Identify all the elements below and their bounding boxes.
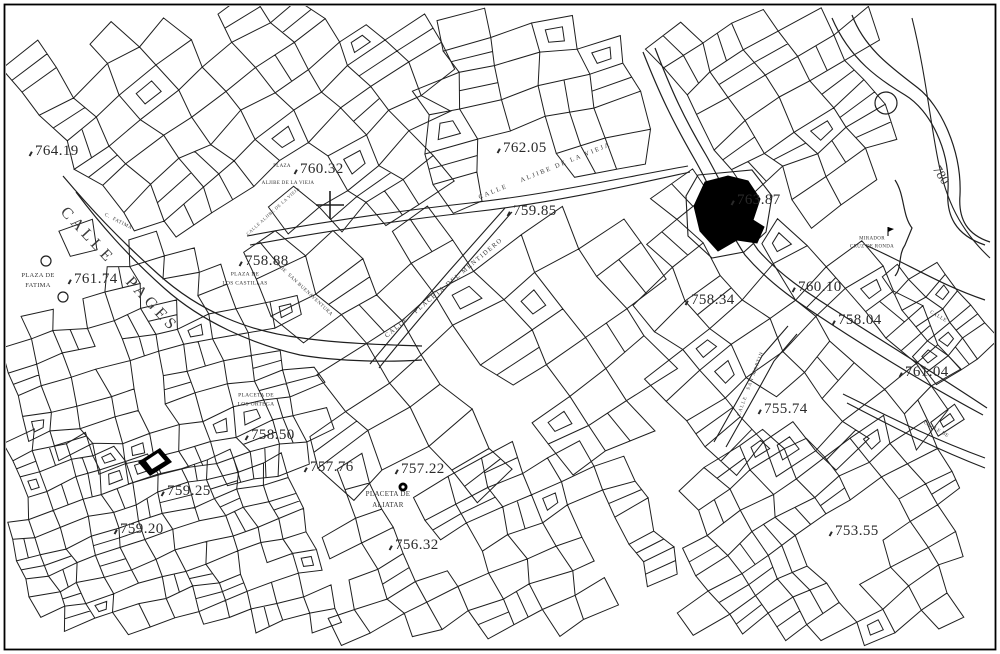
elevation-tick-icon: [389, 545, 393, 550]
elevation-value: 756.32: [395, 537, 439, 553]
elevation-label: 758.50: [244, 427, 295, 444]
place-name-label: PLAZA DELOS CASTILLAS: [222, 270, 267, 287]
street-name-label: CALLE: [929, 310, 948, 324]
elevation-tick-icon: [114, 529, 118, 534]
map-labels-layer: 764.19760.32762.05759.85763.87758.88761.…: [0, 0, 1000, 654]
elevation-tick-icon: [29, 151, 33, 156]
elevation-tick-icon: [304, 467, 308, 472]
elevation-value: 758.04: [838, 312, 882, 328]
elevation-label: 756.32: [388, 537, 439, 554]
place-name-line: ALJIBE DE LA VIEJA: [262, 180, 315, 188]
elevation-value: 759.25: [167, 483, 211, 499]
place-name-label: MIRADORCRUZ DE RONDA: [850, 235, 894, 251]
elevation-label: 759.20: [113, 521, 164, 538]
elevation-label: 753.55: [828, 523, 879, 540]
elevation-label: 758.34: [684, 292, 735, 309]
elevation-tick-icon: [395, 469, 399, 474]
elevation-label: 764.19: [28, 143, 79, 160]
elevation-value: 758.50: [251, 427, 295, 443]
elevation-tick-icon: [68, 279, 72, 284]
elevation-tick-icon: [507, 211, 511, 216]
elevation-tick-icon: [832, 320, 836, 325]
elevation-value: 758.34: [691, 292, 735, 308]
place-name-line: CRUZ DE RONDA: [850, 243, 894, 251]
place-name-label: PLACETA DELOS ORTEGA: [238, 391, 275, 408]
street-name-label: CALLE PLACETA DEL MENTIDERO: [384, 237, 505, 340]
elevation-tick-icon: [899, 372, 903, 377]
elevation-value: 760.10: [798, 279, 842, 295]
place-name-line: PLAZA DE: [222, 270, 267, 279]
place-name-label: PLAZA: [273, 163, 291, 171]
place-name-line: LOS CASTILLAS: [222, 279, 267, 288]
elevation-value: 757.76: [310, 459, 354, 475]
place-name-line: MIRADOR: [850, 235, 894, 243]
map-viewport: 764.19760.32762.05759.85763.87758.88761.…: [0, 0, 1000, 654]
elevation-tick-icon: [685, 300, 689, 305]
place-name-label: PLAZA DEFATIMA: [21, 271, 54, 291]
place-name-line: PLAZA: [273, 163, 291, 171]
place-name-label: ALJIBE DE LA VIEJA: [262, 180, 315, 188]
elevation-value: 757.22: [401, 461, 445, 477]
place-name-line: PLACETA DE: [238, 391, 275, 400]
elevation-tick-icon: [245, 435, 249, 440]
elevation-value: 753.55: [835, 523, 879, 539]
elevation-tick-icon: [829, 531, 833, 536]
elevation-value: 763.87: [737, 192, 781, 208]
elevation-value: 759.85: [513, 203, 557, 219]
elevation-tick-icon: [294, 169, 298, 174]
elevation-tick-icon: [758, 409, 762, 414]
contour-elevation-label: 780: [929, 162, 953, 187]
place-name-line: LOS ORTEGA: [238, 400, 275, 409]
elevation-label: 757.22: [394, 461, 445, 478]
elevation-tick-icon: [239, 261, 243, 266]
elevation-label: 760.32: [293, 161, 344, 178]
elevation-label: 758.04: [831, 312, 882, 329]
elevation-label: 759.85: [506, 203, 557, 220]
elevation-value: 760.32: [300, 161, 344, 177]
street-name-label: C. DE SAN BUENAVENTURA: [273, 260, 334, 317]
elevation-tick-icon: [792, 287, 796, 292]
elevation-tick-icon: [161, 491, 165, 496]
elevation-label: 757.76: [303, 459, 354, 476]
street-name-label: CALLE ALJIBE DE LA VIEJA: [245, 186, 300, 237]
elevation-value: 761.04: [905, 364, 949, 380]
street-name-label: CALLE DE: [923, 421, 950, 439]
place-name-line: PLACETA DE: [366, 489, 411, 500]
street-name-label: C. FATIMA: [103, 213, 132, 231]
elevation-value: 755.74: [764, 401, 808, 417]
elevation-value: 759.20: [120, 521, 164, 537]
elevation-label: 763.87: [730, 192, 781, 209]
place-name-line: PLAZA DE: [21, 271, 54, 281]
elevation-label: 761.04: [898, 364, 949, 381]
elevation-value: 764.19: [35, 143, 79, 159]
elevation-tick-icon: [497, 148, 501, 153]
elevation-label: 755.74: [757, 401, 808, 418]
elevation-value: 762.05: [503, 140, 547, 156]
elevation-label: 760.10: [791, 279, 842, 296]
place-name-line: FATIMA: [21, 281, 54, 291]
place-name-line: ALIATAR: [366, 500, 411, 511]
place-name-label: PLACETA DEALIATAR: [366, 489, 411, 511]
elevation-tick-icon: [731, 200, 735, 205]
elevation-label: 762.05: [496, 140, 547, 157]
elevation-label: 759.25: [160, 483, 211, 500]
